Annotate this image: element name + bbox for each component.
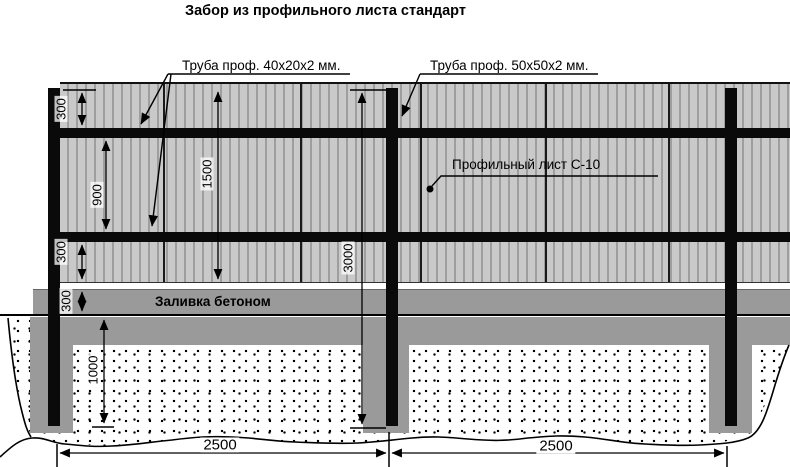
sheet-joint [668, 84, 670, 282]
dim-top-rail-offset: 300 [55, 96, 68, 122]
sheet-joint [420, 84, 422, 282]
dim-post-length: 3000 [342, 242, 355, 275]
dim-sheet-height: 1500 [201, 158, 214, 191]
rail-top [48, 128, 790, 138]
dim-rails-spacing: 900 [91, 182, 104, 208]
rail-bottom [48, 232, 790, 242]
concrete-plinth [33, 289, 790, 314]
profiled-sheet [60, 82, 790, 283]
sheet-joint [300, 84, 302, 282]
dim-plinth-height: 300 [60, 288, 73, 314]
dim-span-left: 2500 [200, 438, 239, 453]
label-post-tube: Труба проф. 50х50х2 мм. [430, 58, 588, 73]
label-rail-tube: Труба проф. 40х20х2 мм. [182, 58, 340, 73]
label-concrete-fill: Заливка бетоном [155, 294, 271, 309]
diagram-title: Забор из профильного листа стандарт [185, 3, 466, 19]
sheet-joint [163, 84, 165, 282]
label-sheet: Профильный лист С-10 [452, 157, 600, 172]
concrete-underground-band [30, 317, 790, 345]
fence-post-middle [386, 88, 398, 426]
sheet-joint [545, 84, 547, 282]
fence-post-right [725, 88, 737, 426]
dim-bottom-rail-offset: 300 [55, 239, 68, 265]
dim-span-right: 2500 [536, 439, 575, 454]
fence-diagram: Забор из профильного листа стандарт Труб… [0, 0, 790, 467]
dim-embedment-depth: 1000 [87, 354, 100, 387]
